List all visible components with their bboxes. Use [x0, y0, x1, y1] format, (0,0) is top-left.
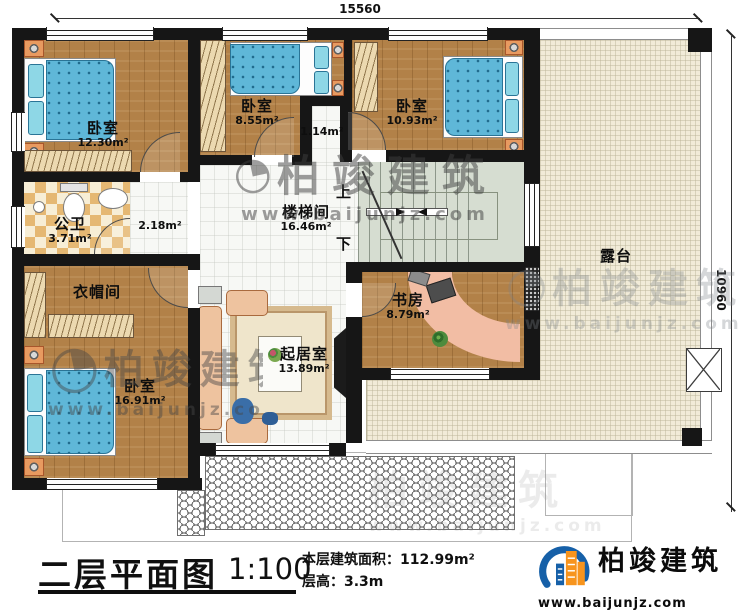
room-name: 卧室	[212, 98, 302, 115]
floor-area-label: 本层建筑面积：	[302, 552, 400, 568]
nightstand	[332, 42, 344, 58]
window-bed3-north	[388, 27, 488, 41]
person-figure	[232, 398, 254, 424]
room-label-corridor-small: 2.18m²	[130, 220, 190, 232]
louver-grille	[525, 267, 539, 311]
title-underline	[38, 590, 296, 594]
room-name: 卧室	[362, 98, 462, 115]
room-name: 露台	[586, 248, 646, 265]
wall-bed1-south-b	[180, 172, 200, 182]
room-area: 16.46m²	[262, 221, 350, 233]
window-study-south	[390, 368, 490, 380]
stair-down-text: 下	[332, 236, 356, 253]
floor-area-line: 本层建筑面积：112.99m²	[302, 549, 475, 569]
floor-corridor-small	[130, 182, 188, 254]
pillow	[28, 64, 44, 98]
room-area: 10.93m²	[362, 115, 462, 127]
plant	[432, 331, 448, 347]
nightstand	[24, 346, 44, 364]
stair-arrow-left-icon	[418, 208, 427, 216]
room-label-study: 书房 8.79m²	[372, 292, 444, 321]
stair-arrow-right-icon	[396, 208, 405, 216]
terrace-post	[682, 428, 702, 446]
closet	[200, 40, 226, 152]
room-area: 12.30m²	[58, 137, 148, 149]
scale-value: 1:100	[228, 552, 312, 586]
room-label-bedroom-bottom-left: 卧室 16.91m²	[94, 378, 186, 407]
pillow	[27, 374, 43, 412]
terrace-post	[688, 28, 712, 52]
side-table	[198, 286, 222, 304]
dimension-line-top	[55, 18, 700, 19]
sofa-long	[198, 306, 222, 430]
pillow	[28, 101, 44, 135]
room-label-cloakroom: 衣帽间	[52, 284, 142, 301]
room-name: 楼梯间	[262, 204, 350, 221]
room-label-terrace: 露台	[586, 248, 646, 265]
stair-inner-edge	[380, 192, 498, 240]
room-area: 3.71m²	[38, 233, 102, 245]
room-label-bathroom: 公卫 3.71m²	[38, 216, 102, 245]
mattress	[230, 44, 300, 94]
wall-leftwing-east-c	[188, 308, 200, 478]
room-name: 衣帽间	[52, 284, 142, 301]
floor-height-value: 3.3m	[344, 574, 383, 590]
nightstand	[24, 40, 44, 57]
floor-height-label: 层高：	[302, 574, 344, 590]
room-area: 2.18m²	[130, 220, 190, 232]
window-bed1-north	[46, 27, 154, 41]
brand-logo-icon	[538, 542, 592, 596]
room-name: 书房	[372, 292, 444, 309]
sofa-chair	[226, 290, 268, 316]
room-name: 起居室	[262, 346, 346, 363]
roof-tiles	[205, 456, 515, 530]
wall-bed3-south-a	[340, 150, 350, 162]
floor-drain	[33, 201, 45, 213]
pillow	[314, 46, 329, 69]
stair-down-label: 下	[332, 236, 356, 253]
room-label-bedroom-top-right: 卧室 10.93m²	[362, 98, 462, 127]
wall-study-west-a	[346, 262, 362, 283]
terrace-rail-south	[366, 440, 712, 454]
floor-plan-canvas: 15560 10960 卧室 12.30m² 卧室 8.55m² 卧室 10.9…	[0, 0, 750, 610]
dimension-right-value: 10960	[714, 250, 728, 330]
room-name: 卧室	[58, 120, 148, 137]
sink	[98, 188, 128, 209]
window-bed4-south	[46, 478, 158, 490]
nightstand	[505, 40, 523, 55]
floor-terrace-south	[366, 380, 540, 440]
window-stair-east	[524, 183, 540, 247]
wall-bath-south	[24, 254, 200, 266]
room-name: 公卫	[38, 216, 102, 233]
room-label-living: 起居室 13.89m²	[262, 346, 346, 375]
window-living-south	[215, 443, 330, 456]
wall-nook-east	[344, 40, 352, 96]
room-area: 16.91m²	[94, 395, 186, 407]
room-area: 13.89m²	[262, 363, 346, 375]
column-marker	[686, 348, 722, 392]
room-area: 8.55m²	[212, 115, 302, 127]
room-area: 8.79m²	[372, 309, 444, 321]
wardrobe	[48, 314, 134, 338]
pillow	[314, 71, 329, 94]
floor-height-line: 层高：3.3m	[302, 571, 383, 591]
window-bath-west	[11, 206, 25, 248]
column-x-icon	[687, 349, 720, 390]
stair-up-text: 上	[332, 184, 356, 201]
room-area: 1.14m²	[294, 126, 350, 138]
room-label-vestibule: 1.14m²	[294, 126, 350, 138]
terrace-rail-north	[540, 28, 688, 40]
window-bed2-north	[222, 27, 308, 41]
nightstand	[332, 80, 344, 96]
lower-floor-outline-right	[545, 452, 633, 516]
wall-study-west-b	[346, 317, 362, 443]
cushion-blue	[262, 412, 278, 425]
roof-tiles-left	[177, 490, 205, 536]
pillow	[27, 415, 43, 453]
window-bed1-west	[11, 112, 25, 152]
toilet-tank	[60, 183, 88, 192]
wardrobe	[24, 150, 132, 172]
room-label-bedroom-top-left: 卧室 12.30m²	[58, 120, 148, 149]
wardrobe	[24, 272, 46, 338]
wall-left	[12, 40, 24, 490]
wall-nook-south	[300, 96, 344, 106]
room-label-stairwell: 楼梯间 16.46m²	[262, 204, 350, 233]
stair-up-label: 上	[332, 184, 356, 201]
room-label-bedroom-top-middle: 卧室 8.55m²	[212, 98, 302, 127]
wall-leftwing-east-a	[188, 40, 200, 182]
wall-bed2-south-a	[200, 155, 252, 165]
nightstand	[24, 458, 44, 476]
pillow	[505, 99, 519, 133]
pillow	[505, 62, 519, 96]
wall-bed1-south-a	[24, 172, 140, 182]
floor-area-value: 112.99m²	[400, 552, 475, 568]
wall-stair-south	[352, 262, 540, 272]
brand-block: 柏竣建筑 www.baijunjz.com	[538, 542, 738, 610]
room-name: 卧室	[94, 378, 186, 395]
floor-terrace-main	[540, 40, 700, 440]
wall-bed3-south-b	[386, 150, 540, 162]
page-title: 二层平面图	[38, 548, 218, 596]
dimension-top-value: 15560	[320, 2, 400, 16]
dimension-line-right	[731, 36, 732, 512]
